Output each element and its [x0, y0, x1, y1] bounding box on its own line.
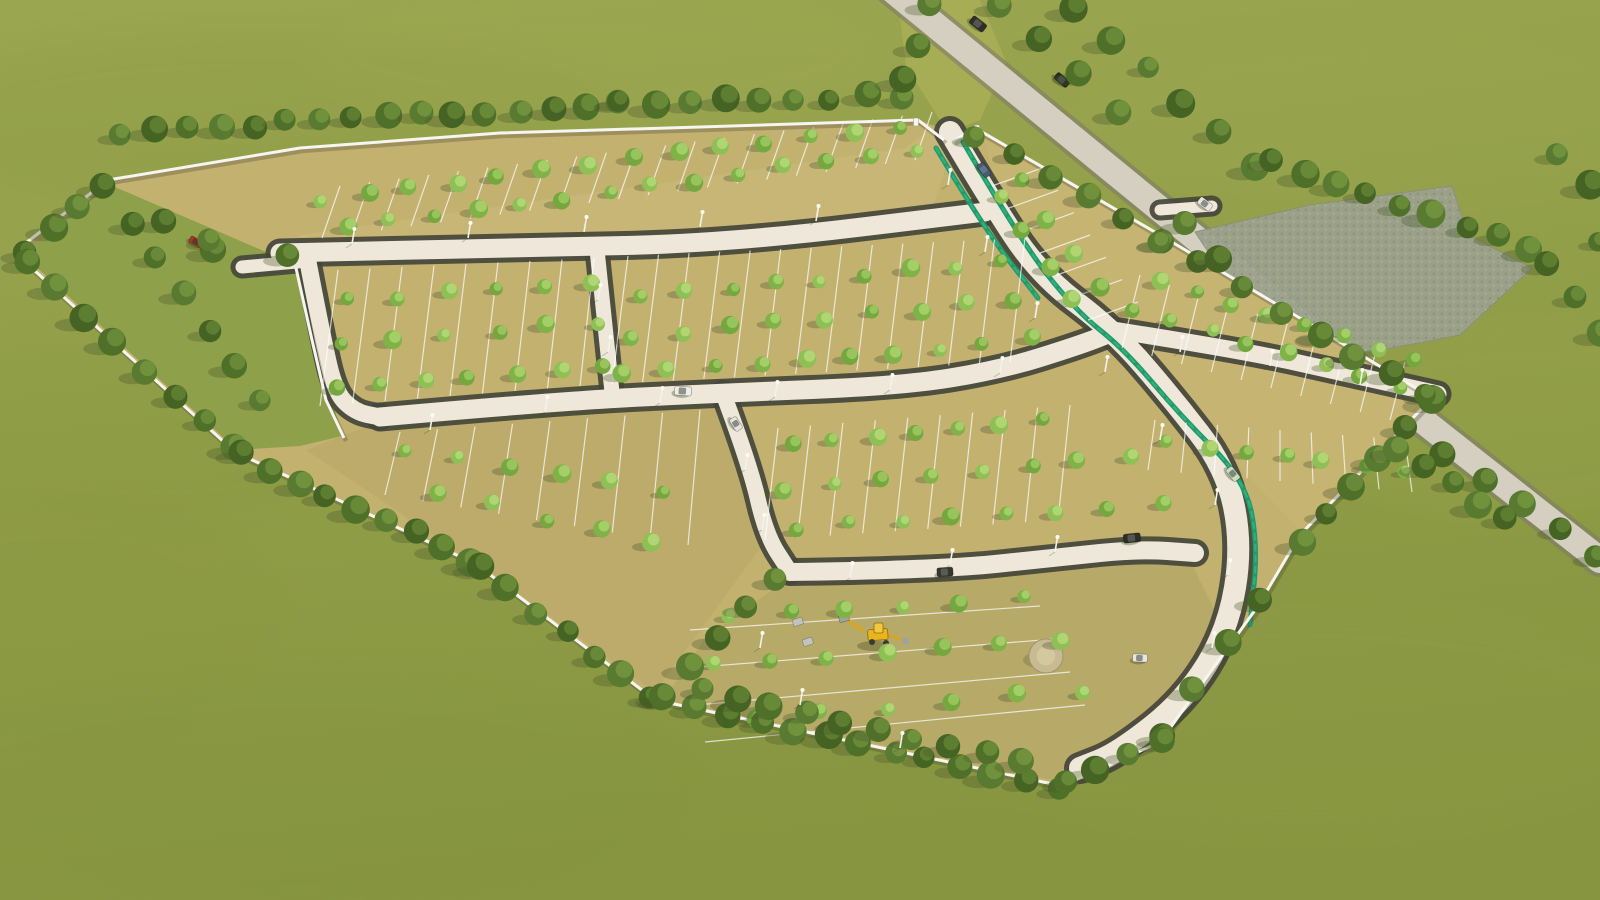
street-lamp-head	[801, 688, 805, 692]
street-lamp-head	[469, 221, 473, 225]
street-lamp-head	[431, 413, 435, 417]
street-lamp-head	[851, 561, 855, 565]
street-lamp-head	[817, 204, 821, 208]
street-lamp-head	[1361, 368, 1365, 372]
street-lamp-head	[609, 335, 613, 339]
street-lamp-head	[951, 548, 955, 552]
street-lamp-head	[1213, 631, 1217, 635]
street-lamp-head	[901, 731, 905, 735]
street-lamp-head	[599, 283, 603, 287]
viewport	[0, 0, 1600, 900]
street-lamp-head	[776, 380, 780, 384]
street-lamp-head	[1036, 301, 1040, 305]
street-lamp-head	[701, 210, 705, 214]
street-lamp-head	[1181, 335, 1185, 339]
street-lamp-head	[1001, 356, 1005, 360]
street-lamp-head	[661, 386, 665, 390]
street-lamp-head	[891, 373, 895, 377]
street-lamp-head	[1161, 423, 1165, 427]
street-lamp-head	[1229, 558, 1233, 562]
street-lamp-head	[585, 215, 589, 219]
street-lamp-head	[1216, 488, 1220, 492]
street-lamp-head	[546, 395, 550, 399]
street-lamp-head	[986, 235, 990, 239]
street-lamp-head	[746, 453, 750, 457]
street-lamp-head	[1106, 355, 1110, 359]
street-lamp-head	[949, 168, 953, 172]
street-lamp-head	[1271, 349, 1275, 353]
aerial-3d-render	[0, 0, 1600, 900]
street-lamp-head	[1056, 535, 1060, 539]
gate-pillar	[914, 118, 919, 126]
backhoe-rear-bucket	[902, 638, 909, 644]
street-lamp-head	[761, 631, 765, 635]
street-lamp-head	[353, 227, 357, 231]
street-lamp-head	[763, 513, 767, 517]
